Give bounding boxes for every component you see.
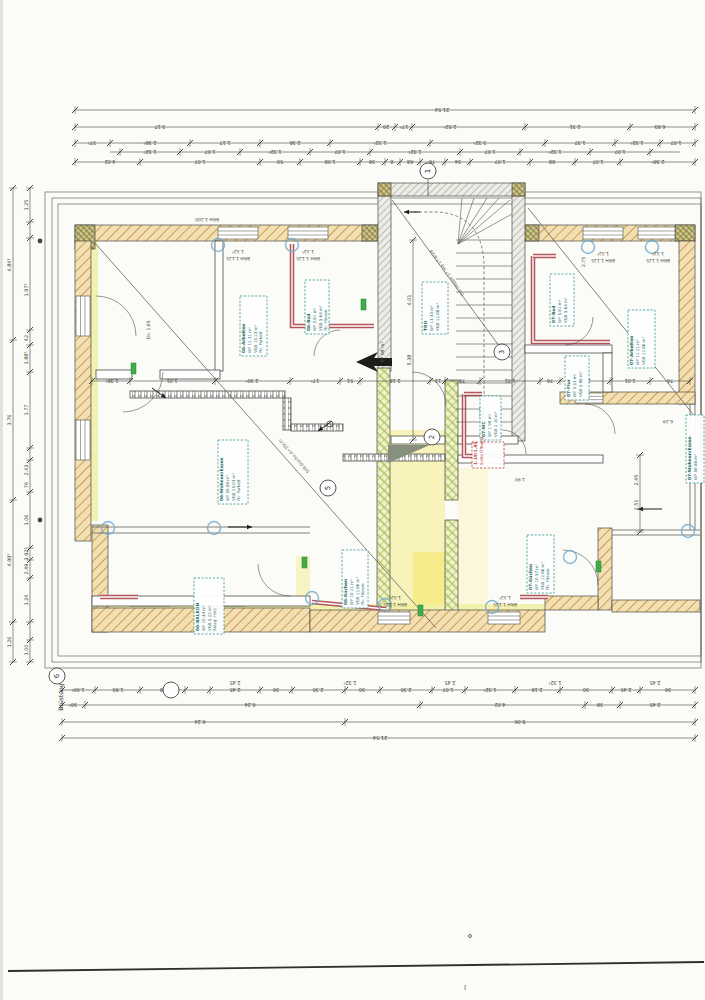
room-label-line: WF 59.88 m² bbox=[225, 475, 230, 501]
dimension-label: 1.92⁵ bbox=[23, 547, 29, 560]
stair-winder bbox=[458, 214, 512, 244]
room-label-line: WF 11.21 m² bbox=[635, 339, 640, 365]
dimension-label: 4.84¹ bbox=[6, 258, 12, 271]
door-arc bbox=[258, 564, 290, 596]
dimension-label: 8 bbox=[390, 159, 393, 165]
room-label-title: 07-Wohnen/Essen bbox=[687, 436, 692, 480]
room-label-line: Belag: Holz bbox=[212, 608, 217, 631]
dimension-label: 17⁵ bbox=[311, 378, 319, 384]
dimension-label: 2.45 bbox=[229, 680, 240, 686]
dimension-label: 1.32⁵ bbox=[143, 149, 156, 155]
window bbox=[76, 296, 90, 336]
dimension-label: 30 bbox=[273, 687, 279, 693]
dimension-label: 1.07 bbox=[592, 159, 603, 165]
note-text: 6.29 bbox=[663, 419, 673, 424]
dimension-label: 88 bbox=[549, 159, 555, 165]
note-text: BRH 1.125 bbox=[493, 602, 517, 607]
room-label-line: WF 12.31 m² bbox=[247, 327, 252, 353]
room-label-line: VGB 5.64 m² bbox=[318, 305, 323, 331]
dimension-label: 1.77 bbox=[23, 404, 29, 415]
exterior-wall bbox=[675, 225, 695, 241]
door-arc bbox=[585, 404, 615, 434]
room-label-line: VGB 5.22 m² bbox=[207, 605, 212, 631]
interior-wall bbox=[525, 345, 612, 353]
room-label-line: VGB 25.03 m² bbox=[231, 473, 236, 501]
dimension-label: 38 bbox=[369, 159, 375, 165]
dimension-label: 2.49 bbox=[23, 563, 29, 574]
note-text: BRH 1.125 bbox=[591, 258, 615, 263]
dimension-label: 1.24 bbox=[23, 594, 29, 605]
room-label-line: WF 59.88 m² bbox=[693, 454, 698, 480]
window bbox=[583, 227, 623, 239]
room-label-line: VGB 12.88 m² bbox=[435, 303, 440, 331]
dimension-label: 1.32⁵ bbox=[483, 687, 496, 693]
room-label-title: 06-Bad bbox=[306, 314, 311, 331]
exterior-wall bbox=[445, 380, 458, 500]
dimension-label: 2.30 bbox=[400, 687, 411, 693]
dimension-label: 6.24 bbox=[194, 719, 205, 725]
dimension-label: 2.45 bbox=[444, 680, 455, 686]
room-label-line: Fb: Fliesen bbox=[545, 568, 550, 590]
door-arc bbox=[412, 372, 446, 406]
dimension-label: 76 bbox=[23, 482, 29, 488]
axis-marker-number: 2 bbox=[428, 435, 436, 439]
room-label-line: WF 1.98 m² bbox=[487, 413, 492, 437]
note-text: BRH 1.125 bbox=[383, 602, 407, 607]
dimension-label: 1.00⁵ bbox=[71, 687, 84, 693]
room-label-title: 07-Arbeiten bbox=[629, 336, 634, 365]
exterior-wall bbox=[362, 225, 378, 241]
stair-winder bbox=[458, 198, 462, 244]
floor-plan-drawing: 21.543.172017⁵2.52⁵2.316.9337⁵2.38⁵1.172… bbox=[0, 0, 705, 1000]
note-text: BRH 1.125 bbox=[226, 256, 250, 261]
axis-marker-number: 1 bbox=[424, 169, 432, 173]
exterior-wall bbox=[512, 183, 525, 196]
dimension-label: 2.18 bbox=[531, 687, 542, 693]
blue-marker bbox=[582, 241, 595, 254]
dimension-label: 9.06 bbox=[514, 719, 525, 725]
plan-line bbox=[8, 962, 704, 971]
black-dot bbox=[38, 239, 43, 244]
dimension-label: 1.06 bbox=[23, 514, 29, 525]
room-label-line: lichte Öffnung bbox=[479, 436, 484, 465]
dimension-label: 1.97⁵ bbox=[23, 283, 29, 296]
dimension-label: 3.76 bbox=[6, 414, 12, 425]
dimension-label: 21.54 bbox=[435, 107, 449, 113]
dimension-label: 21.54 bbox=[373, 735, 387, 741]
dimension-label: 38 bbox=[597, 702, 603, 708]
dimension-label: 2.45 bbox=[633, 474, 639, 485]
dimension-label: 6.93 bbox=[654, 124, 665, 130]
dimension-label: 30¹ bbox=[69, 702, 77, 708]
room-label-line: VGB 12.86 m² bbox=[355, 577, 360, 605]
dimension-label: 1.07 bbox=[334, 149, 345, 155]
scanned-floorplan-page: 21.543.172017⁵2.52⁵2.316.9337⁵2.38⁵1.172… bbox=[0, 0, 705, 1000]
dimension-label: 1.32⁵ bbox=[548, 680, 561, 686]
room-label-line: Fb: Parkett bbox=[236, 479, 241, 501]
room-label-line: Fb: Fliesen bbox=[323, 309, 328, 331]
room-label-title: 06-Arbeiten bbox=[241, 324, 246, 353]
axis-marker-number: 3 bbox=[498, 350, 506, 354]
dimension-label: 42 bbox=[23, 335, 29, 341]
dimension-label: 1.25 bbox=[23, 199, 29, 210]
door-arc bbox=[563, 550, 598, 585]
dimension-label: 1.17 bbox=[219, 140, 230, 146]
exterior-wall bbox=[445, 520, 458, 618]
blue-marker bbox=[208, 522, 221, 535]
floor-highlight bbox=[458, 468, 488, 618]
window bbox=[288, 227, 328, 239]
dimension-label: 1.07 bbox=[484, 149, 495, 155]
door-arc bbox=[96, 296, 136, 336]
exterior-wall bbox=[612, 600, 700, 612]
room-label-line: WF 10.21 m² bbox=[349, 579, 354, 605]
blue-marker bbox=[682, 525, 695, 538]
dimension-label: 1.32⁵ bbox=[268, 149, 281, 155]
room-label-line: WF 13.43 m² bbox=[429, 305, 434, 331]
dimension-label: 2.45 bbox=[620, 687, 631, 693]
dimension-label: 2.30⁵ bbox=[245, 378, 258, 384]
arrow-head bbox=[404, 210, 409, 214]
dimension-label: 4.99⁵ bbox=[6, 553, 12, 566]
dimension-label: 51 bbox=[347, 378, 353, 384]
dimension-label: 2.45 bbox=[649, 702, 660, 708]
exterior-wall bbox=[545, 596, 598, 610]
exterior-wall bbox=[525, 225, 539, 241]
dimension-label: 1.07 bbox=[204, 149, 215, 155]
note-text: Brüstung bbox=[57, 683, 65, 710]
dimension-label: 1.01 bbox=[624, 378, 635, 384]
note-text: Dn. 1.05 bbox=[146, 320, 151, 339]
dimension-label: 1.32⁵ bbox=[408, 149, 421, 155]
dimension-label: 1.07 bbox=[670, 140, 681, 146]
interior-wall bbox=[96, 370, 132, 379]
note-text: BRH 1.125 bbox=[646, 258, 670, 263]
arrow-head bbox=[247, 525, 252, 529]
dimension-label: 2.30 bbox=[312, 687, 323, 693]
exterior-wall bbox=[512, 196, 525, 441]
green-marker bbox=[302, 557, 307, 568]
window bbox=[76, 420, 90, 460]
dimension-label: 1.37 bbox=[574, 140, 585, 146]
dimension-label: 1.88⁵ bbox=[23, 351, 29, 364]
knee-wall bbox=[283, 398, 291, 430]
room-label-line: WF 10.57 m² bbox=[534, 564, 539, 590]
green-marker bbox=[131, 363, 136, 374]
room-label-title: 06-BALKON bbox=[195, 603, 200, 631]
dimension-label: 1.07 bbox=[194, 159, 205, 165]
dimension-label: 4.01 bbox=[406, 294, 412, 305]
dimension-label: 2.18 bbox=[389, 378, 400, 384]
interior-wall bbox=[215, 241, 223, 371]
dimension-label: 3.32⁵ bbox=[473, 140, 486, 146]
room-label-line: WF 5.81 m² bbox=[557, 299, 562, 323]
stair-winder bbox=[458, 198, 487, 244]
note-text: 87.99 m² bbox=[380, 342, 385, 363]
room-label-line: VGB 10.23 m² bbox=[253, 325, 258, 353]
room-label-line: Fb: Fliesen bbox=[360, 583, 365, 605]
room-label-line: WF 5.81 m² bbox=[312, 307, 317, 331]
room-label-title: 1.19/1.45 bbox=[473, 442, 478, 465]
dimension-label: 30 bbox=[359, 687, 365, 693]
dimension-label: 68 bbox=[407, 159, 413, 165]
window bbox=[378, 612, 410, 624]
room-label-title: 07-WC bbox=[481, 421, 486, 437]
dimension-label: 1.01 bbox=[166, 378, 177, 384]
dimension-label: 76 bbox=[547, 378, 553, 384]
dimension-label: 2.52⁵ bbox=[443, 124, 456, 130]
dimension-label: 30 bbox=[665, 687, 671, 693]
dimension-label: 2.45 bbox=[229, 687, 240, 693]
exterior-wall bbox=[377, 368, 390, 618]
dimension-label: 2.38 bbox=[289, 140, 300, 146]
dimension-label: 17⁵ bbox=[400, 124, 408, 130]
note-text: BRH 1.125 bbox=[296, 256, 320, 261]
room-label-title: 07-Flur bbox=[566, 378, 571, 397]
interior-wall bbox=[603, 353, 612, 392]
window bbox=[218, 227, 258, 239]
dimension-label: 1.07 bbox=[614, 149, 625, 155]
dimension-label: 1.07 bbox=[442, 687, 453, 693]
axis-marker-number: 5 bbox=[324, 486, 332, 490]
room-label-title: 07-Bad bbox=[551, 306, 556, 323]
room-label-line: VGB 5.64 m² bbox=[563, 297, 568, 323]
exterior-wall bbox=[378, 183, 525, 196]
dimension-label: 1.08 bbox=[324, 159, 335, 165]
note-text: 1.32⁵ bbox=[499, 595, 511, 600]
black-dot bbox=[38, 518, 43, 523]
room-label-title: 06-Wohnen/Essen bbox=[219, 457, 224, 501]
dimension-label: 1.93 bbox=[112, 687, 123, 693]
axis-marker bbox=[163, 682, 179, 698]
dimension-label: 6.24 bbox=[244, 702, 255, 708]
room-label-title: 06-Küchen bbox=[343, 579, 348, 605]
dimension-label: 50 bbox=[277, 159, 283, 165]
room-label-line: WF 5.53 m² bbox=[572, 373, 577, 397]
dimension-label: 3.17 bbox=[154, 124, 165, 130]
open-dot bbox=[469, 935, 472, 938]
dimension-label: 20 bbox=[383, 124, 389, 130]
dimension-label: 1.32⁵ bbox=[630, 140, 643, 146]
exterior-wall bbox=[679, 241, 695, 404]
arrow-head bbox=[638, 507, 643, 511]
window bbox=[638, 227, 675, 239]
dimension-label: 1.26 bbox=[6, 636, 12, 647]
note-text: 1.32⁵ bbox=[389, 595, 401, 600]
room-label-line: VGB 2.10 m² bbox=[493, 411, 498, 437]
room-label-line: VGB 12.86 m² bbox=[641, 337, 646, 365]
room-label-title: 07-Küchen bbox=[528, 564, 533, 590]
room-label-line: VGB 12.86 m² bbox=[540, 562, 545, 590]
dimension-label: 76 bbox=[667, 378, 673, 384]
room-label-line: VGB 5.96 m² bbox=[578, 371, 583, 397]
dimension-label: 1.38¹ bbox=[105, 378, 118, 384]
dimension-label: 1.00 bbox=[23, 644, 29, 655]
knee-wall bbox=[130, 391, 285, 398]
room-label-line: Fb: Parkett bbox=[258, 331, 263, 353]
dimension-label: 2.31 bbox=[569, 124, 580, 130]
green-marker bbox=[596, 561, 601, 572]
dimension-label: 2.38⁵ bbox=[143, 140, 156, 146]
blue-marker bbox=[564, 551, 577, 564]
footer-mark: I bbox=[464, 984, 466, 992]
axis-marker-number: 6 bbox=[53, 673, 61, 678]
note-text: 1.32⁵ bbox=[597, 251, 609, 256]
dimension-label: 5.38 bbox=[406, 354, 412, 365]
dimension-label: 4.02 bbox=[104, 159, 115, 165]
dimension-label: 1.07 bbox=[494, 159, 505, 165]
dimension-label: 2.38⁵ bbox=[651, 159, 664, 165]
note-text: 1.90 bbox=[515, 477, 525, 482]
green-marker bbox=[418, 605, 423, 616]
dimension-label: 79 bbox=[459, 378, 465, 384]
note-text: 1.32⁵ bbox=[302, 249, 314, 254]
dimension-label: 1.32⁵ bbox=[548, 149, 561, 155]
dimension-label: 37⁵ bbox=[88, 140, 96, 146]
green-marker bbox=[361, 299, 366, 310]
room-label-title: TRH bbox=[423, 321, 428, 331]
dimension-label: 30 bbox=[583, 687, 589, 693]
dimension-label: 1.32⁵ bbox=[343, 680, 356, 686]
dimension-label: 2.43 bbox=[23, 464, 29, 475]
dimension-label: 34 bbox=[455, 159, 461, 165]
note-text: 2.75 bbox=[581, 257, 586, 267]
dimension-label: 4.02 bbox=[494, 702, 505, 708]
dimension-label: 1.32⁵ bbox=[373, 140, 386, 146]
dimension-label: 2.51 bbox=[633, 499, 639, 510]
exterior-wall bbox=[75, 241, 91, 541]
note-text: StB-Decke d=35cm bbox=[277, 438, 310, 474]
room-label-line: WF 10.44 m² bbox=[201, 605, 206, 631]
note-text: BRH 1.200 bbox=[195, 217, 219, 222]
exterior-wall bbox=[378, 183, 391, 196]
dimension-label: 11 bbox=[435, 378, 441, 384]
dimension-label: 2.45 bbox=[649, 680, 660, 686]
dimension-label: 1.01 bbox=[504, 378, 515, 384]
knee-wall bbox=[291, 424, 343, 431]
note-text: 1.32⁵ bbox=[652, 251, 664, 256]
note-text: 1.32⁵ bbox=[232, 249, 244, 254]
